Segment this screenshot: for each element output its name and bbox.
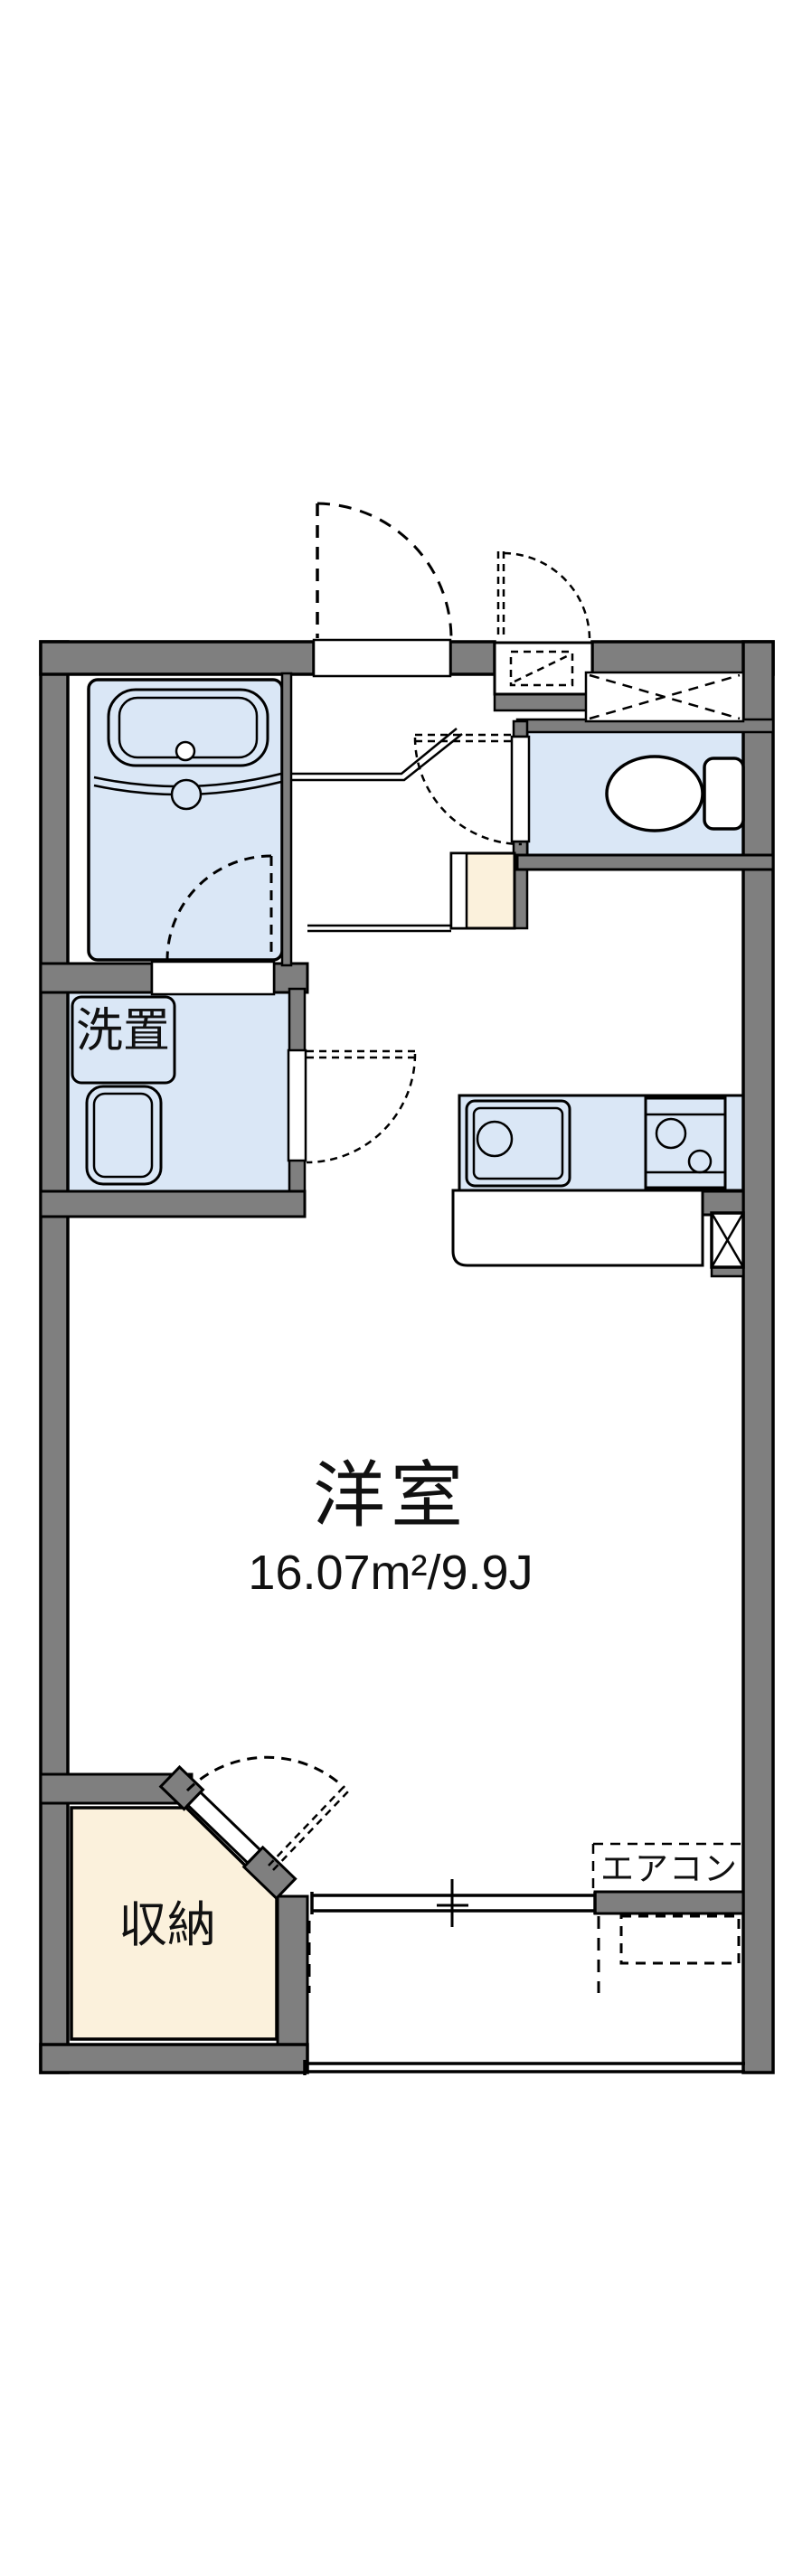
wall-top-mid xyxy=(450,642,495,674)
meter-box-door-arc xyxy=(504,553,590,638)
floor-plan-page: 洗置 洋室 16.07m²/9.9J 収納 エアコン xyxy=(0,0,812,2576)
washbasin-outer xyxy=(87,1086,161,1184)
main-room-label: 洋室 xyxy=(313,1455,468,1536)
entrance-opening xyxy=(314,640,450,676)
wall-left-outer xyxy=(41,642,68,2073)
room-fills xyxy=(68,680,743,2039)
wall-laundry-right-lower xyxy=(289,1160,305,1193)
unit-bath xyxy=(89,680,282,960)
wall-toilet-left-upper xyxy=(514,721,527,737)
wall-bath-divider-left xyxy=(41,964,152,992)
entrance-door xyxy=(317,503,451,638)
toilet-door-arc xyxy=(415,738,522,844)
wall-aircon-divider xyxy=(595,1892,743,1913)
storage-door-leaf-1 xyxy=(269,1786,345,1866)
laundry-label: 洗置 xyxy=(76,1005,170,1058)
main-room-area: 16.07m²/9.9J xyxy=(248,1546,533,1600)
bathroom-door-opening xyxy=(152,962,274,994)
toilet-bowl xyxy=(607,757,703,831)
counter-front xyxy=(453,1190,703,1265)
bath-drain xyxy=(172,780,201,809)
wall-toilet-bottom xyxy=(517,855,773,870)
kitchen-counter xyxy=(459,1095,743,1190)
laundry-door-opening xyxy=(288,1050,306,1161)
wall-laundry-right-upper xyxy=(289,989,305,1054)
storage-door-leaf-2 xyxy=(273,1791,349,1870)
shoe-cabinet-door xyxy=(451,853,467,928)
entrance-door-arc xyxy=(317,503,451,637)
bath-faucet xyxy=(176,742,194,760)
storage-label: 収納 xyxy=(118,1898,216,1952)
wall-bathroom-right xyxy=(282,673,291,965)
toilet-tank xyxy=(704,758,743,829)
aircon-label: エアコン xyxy=(600,1850,738,1887)
wall-top-left xyxy=(41,642,314,674)
wall-bottom xyxy=(41,2045,307,2073)
laundry-door-arc xyxy=(307,1054,415,1162)
wall-laundry-bottom xyxy=(41,1191,305,1217)
floor-plan-svg: 洗置 洋室 16.07m²/9.9J 収納 エアコン xyxy=(0,0,812,2576)
storage-door-arc xyxy=(187,1757,345,1791)
toilet-door-opening xyxy=(512,737,529,841)
aircon-unit-dashed xyxy=(621,1916,739,1963)
